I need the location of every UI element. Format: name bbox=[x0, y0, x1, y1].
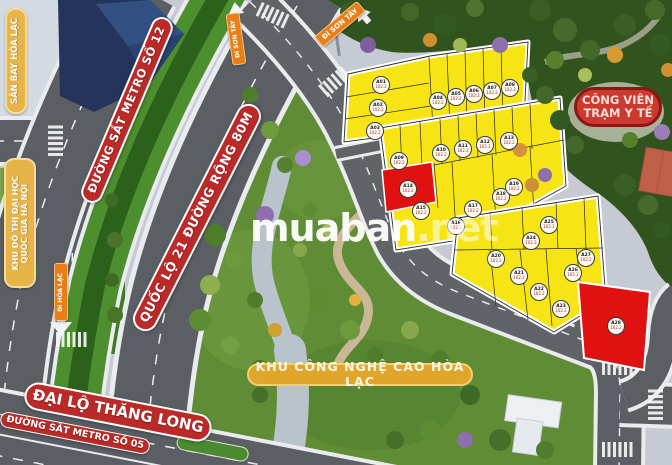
plot-stamp: A14102.2 bbox=[399, 180, 417, 198]
plot-stamp: A03102.2 bbox=[366, 122, 384, 140]
plot-stamp: A06102.2 bbox=[465, 85, 483, 103]
sign-di-hoa-lac: Đi HÒA LẠC bbox=[54, 263, 68, 321]
plot-stamp: A01102.2 bbox=[372, 76, 390, 94]
label-khu-do-thi: KHU ĐÔ THỊ ĐẠI HỌC QUỐC GIA HÀ NỘI bbox=[4, 158, 36, 288]
label-san-bay-text: SÂN BAY HÒA LẠC bbox=[11, 18, 21, 104]
plot-stamp: A12102.2 bbox=[476, 136, 494, 154]
plot-stamp: A23102.2 bbox=[552, 300, 570, 318]
watermark: muaban.net bbox=[250, 206, 498, 250]
plot-stamp: A19102.2 bbox=[505, 178, 523, 196]
plot-stamp: A10102.2 bbox=[432, 144, 450, 162]
watermark-part2: .net bbox=[416, 206, 497, 250]
plot-stamp: A20102.2 bbox=[487, 250, 505, 268]
label-cong-vien-tram-y-te: CÔNG VIÊN TRẠM Y TẾ bbox=[574, 87, 662, 127]
plot-stamp: A04102.2 bbox=[429, 92, 447, 110]
label-san-bay-hoa-lac: SÂN BAY HÒA LẠC bbox=[5, 8, 27, 114]
plot-stamp: A26102.2 bbox=[564, 264, 582, 282]
plot-stamp: A05102.2 bbox=[447, 88, 465, 106]
plot-stamp: A24102.2 bbox=[522, 232, 540, 250]
watermark-part1: muaban bbox=[250, 206, 416, 250]
plot-stamp: A27102.2 bbox=[577, 249, 595, 267]
real-estate-plan-map: A01102.2A02102.2A03102.2A04102.2A05102.2… bbox=[0, 0, 672, 465]
plot-stamp: A28102.2 bbox=[607, 317, 625, 335]
plot-stamp: A02102.2 bbox=[369, 99, 387, 117]
plot-stamp: A07102.2 bbox=[483, 82, 501, 100]
label-khu-cong-nghe-cao: KHU CÔNG NGHỆ CAO HÒA LẠC bbox=[247, 363, 473, 386]
plot-stamp: A11102.2 bbox=[454, 140, 472, 158]
plot-stamp: A13102.2 bbox=[500, 132, 518, 150]
label-khu-do-thi-text: KHU ĐÔ THỊ ĐẠI HỌC QUỐC GIA HÀ NỘI bbox=[11, 176, 29, 270]
plot-stamp: A08102.2 bbox=[501, 79, 519, 97]
plot-stamp: A09102.2 bbox=[390, 152, 408, 170]
plot-stamp: A21102.2 bbox=[510, 267, 528, 285]
plot-stamp: A25102.2 bbox=[540, 216, 558, 234]
plot-stamp: A22102.2 bbox=[530, 283, 548, 301]
